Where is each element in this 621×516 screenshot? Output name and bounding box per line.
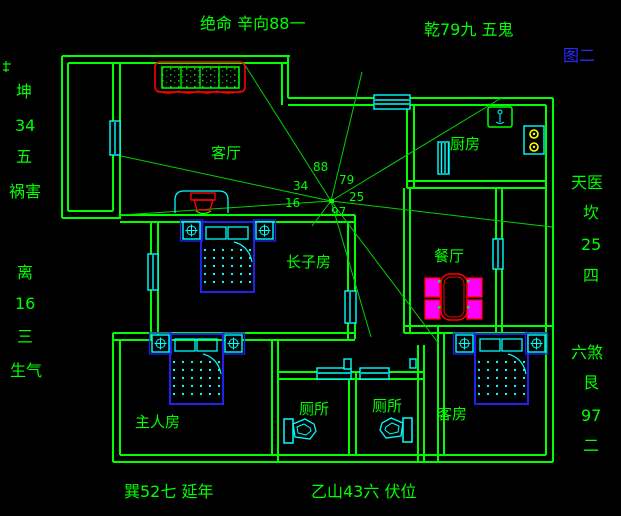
- nightstand: [454, 333, 476, 354]
- room-label-guest: 客房: [437, 405, 467, 423]
- duct-stub-left: [344, 359, 351, 369]
- figure-label: 图二: [563, 46, 595, 65]
- window-eldest-left: [148, 254, 158, 290]
- left-upper-star: 五: [16, 147, 32, 166]
- center-number-79: 79: [339, 173, 354, 187]
- annotation-top-right: 乾79九 五鬼: [424, 20, 513, 39]
- window-top-wall: [374, 95, 410, 109]
- window-dining-right: [493, 239, 503, 269]
- room-label-eldest-son: 长子房: [286, 253, 331, 271]
- room-label-master: 主人房: [135, 413, 180, 431]
- left-lower-number: 16: [15, 294, 35, 313]
- center-number-25: 25: [349, 190, 364, 204]
- right-upper-name: 天医: [571, 173, 603, 192]
- right-upper-trigram: 坎: [583, 203, 599, 222]
- bed-master: [170, 334, 223, 404]
- nightstand: [526, 333, 548, 354]
- annotation-top-left: 绝命 辛向88一: [200, 14, 305, 33]
- duct-stub-right: [410, 359, 416, 368]
- kitchen-sink: [488, 107, 512, 127]
- stray-glyph: [3, 61, 11, 72]
- left-lower-star: 三: [17, 327, 33, 346]
- nightstand: [181, 220, 203, 241]
- annotation-bottom-center: 乙山43六 伏位: [311, 482, 416, 501]
- left-upper-trigram: 坤: [16, 82, 32, 101]
- kitchen-louver-door: [438, 142, 449, 174]
- center-number-34: 34: [293, 179, 308, 193]
- left-lower-trigram: 离: [17, 263, 33, 282]
- floorplan-drawing: 绝命 辛向88一 乾79九 五鬼 图二 坤 34 五 祸害 离 16 三 生气 …: [0, 0, 621, 516]
- right-lower-number: 97: [581, 406, 601, 425]
- nightstand: [223, 333, 245, 354]
- chair: [425, 300, 440, 319]
- chair: [425, 278, 440, 297]
- annotation-bottom-left: 巽52七 延年: [124, 482, 213, 501]
- sofa: [155, 62, 245, 93]
- dining-table-set: [425, 274, 482, 320]
- right-lower-trigram: 艮: [583, 373, 599, 392]
- left-lower-name: 生气: [10, 361, 42, 380]
- window-eldest-right: [345, 291, 356, 323]
- center-number-88: 88: [313, 160, 328, 174]
- compass-center-point: [329, 199, 334, 203]
- chair: [467, 300, 482, 319]
- room-label-toilet-left: 厕所: [299, 400, 329, 418]
- room-label-kitchen: 厨房: [450, 135, 480, 153]
- bed-guest: [475, 334, 528, 404]
- center-number-16: 16: [285, 196, 300, 210]
- room-label-living: 客厅: [211, 144, 241, 162]
- toilet-fixture-right: [380, 418, 412, 442]
- right-lower-name: 六煞: [571, 343, 603, 362]
- toilet-fixture-left: [284, 419, 316, 443]
- kitchen-stove: [524, 126, 544, 154]
- door-porch: [110, 121, 120, 155]
- right-upper-number: 25: [581, 235, 601, 254]
- window-toilet-right: [360, 368, 389, 379]
- left-upper-number: 34: [15, 116, 35, 135]
- left-upper-name: 祸害: [9, 182, 41, 201]
- tv-cabinet: [175, 191, 228, 214]
- room-label-toilet-right: 厕所: [372, 397, 402, 415]
- cad-floorplan-canvas: 绝命 辛向88一 乾79九 五鬼 图二 坤 34 五 祸害 离 16 三 生气 …: [0, 0, 621, 516]
- bed-eldest-son: [201, 222, 254, 292]
- nightstand: [150, 333, 172, 354]
- right-upper-star: 四: [583, 266, 599, 285]
- right-lower-star: 二: [583, 436, 599, 455]
- center-number-97: 97: [331, 205, 346, 219]
- room-label-dining: 餐厅: [434, 247, 464, 265]
- nightstand: [254, 220, 276, 241]
